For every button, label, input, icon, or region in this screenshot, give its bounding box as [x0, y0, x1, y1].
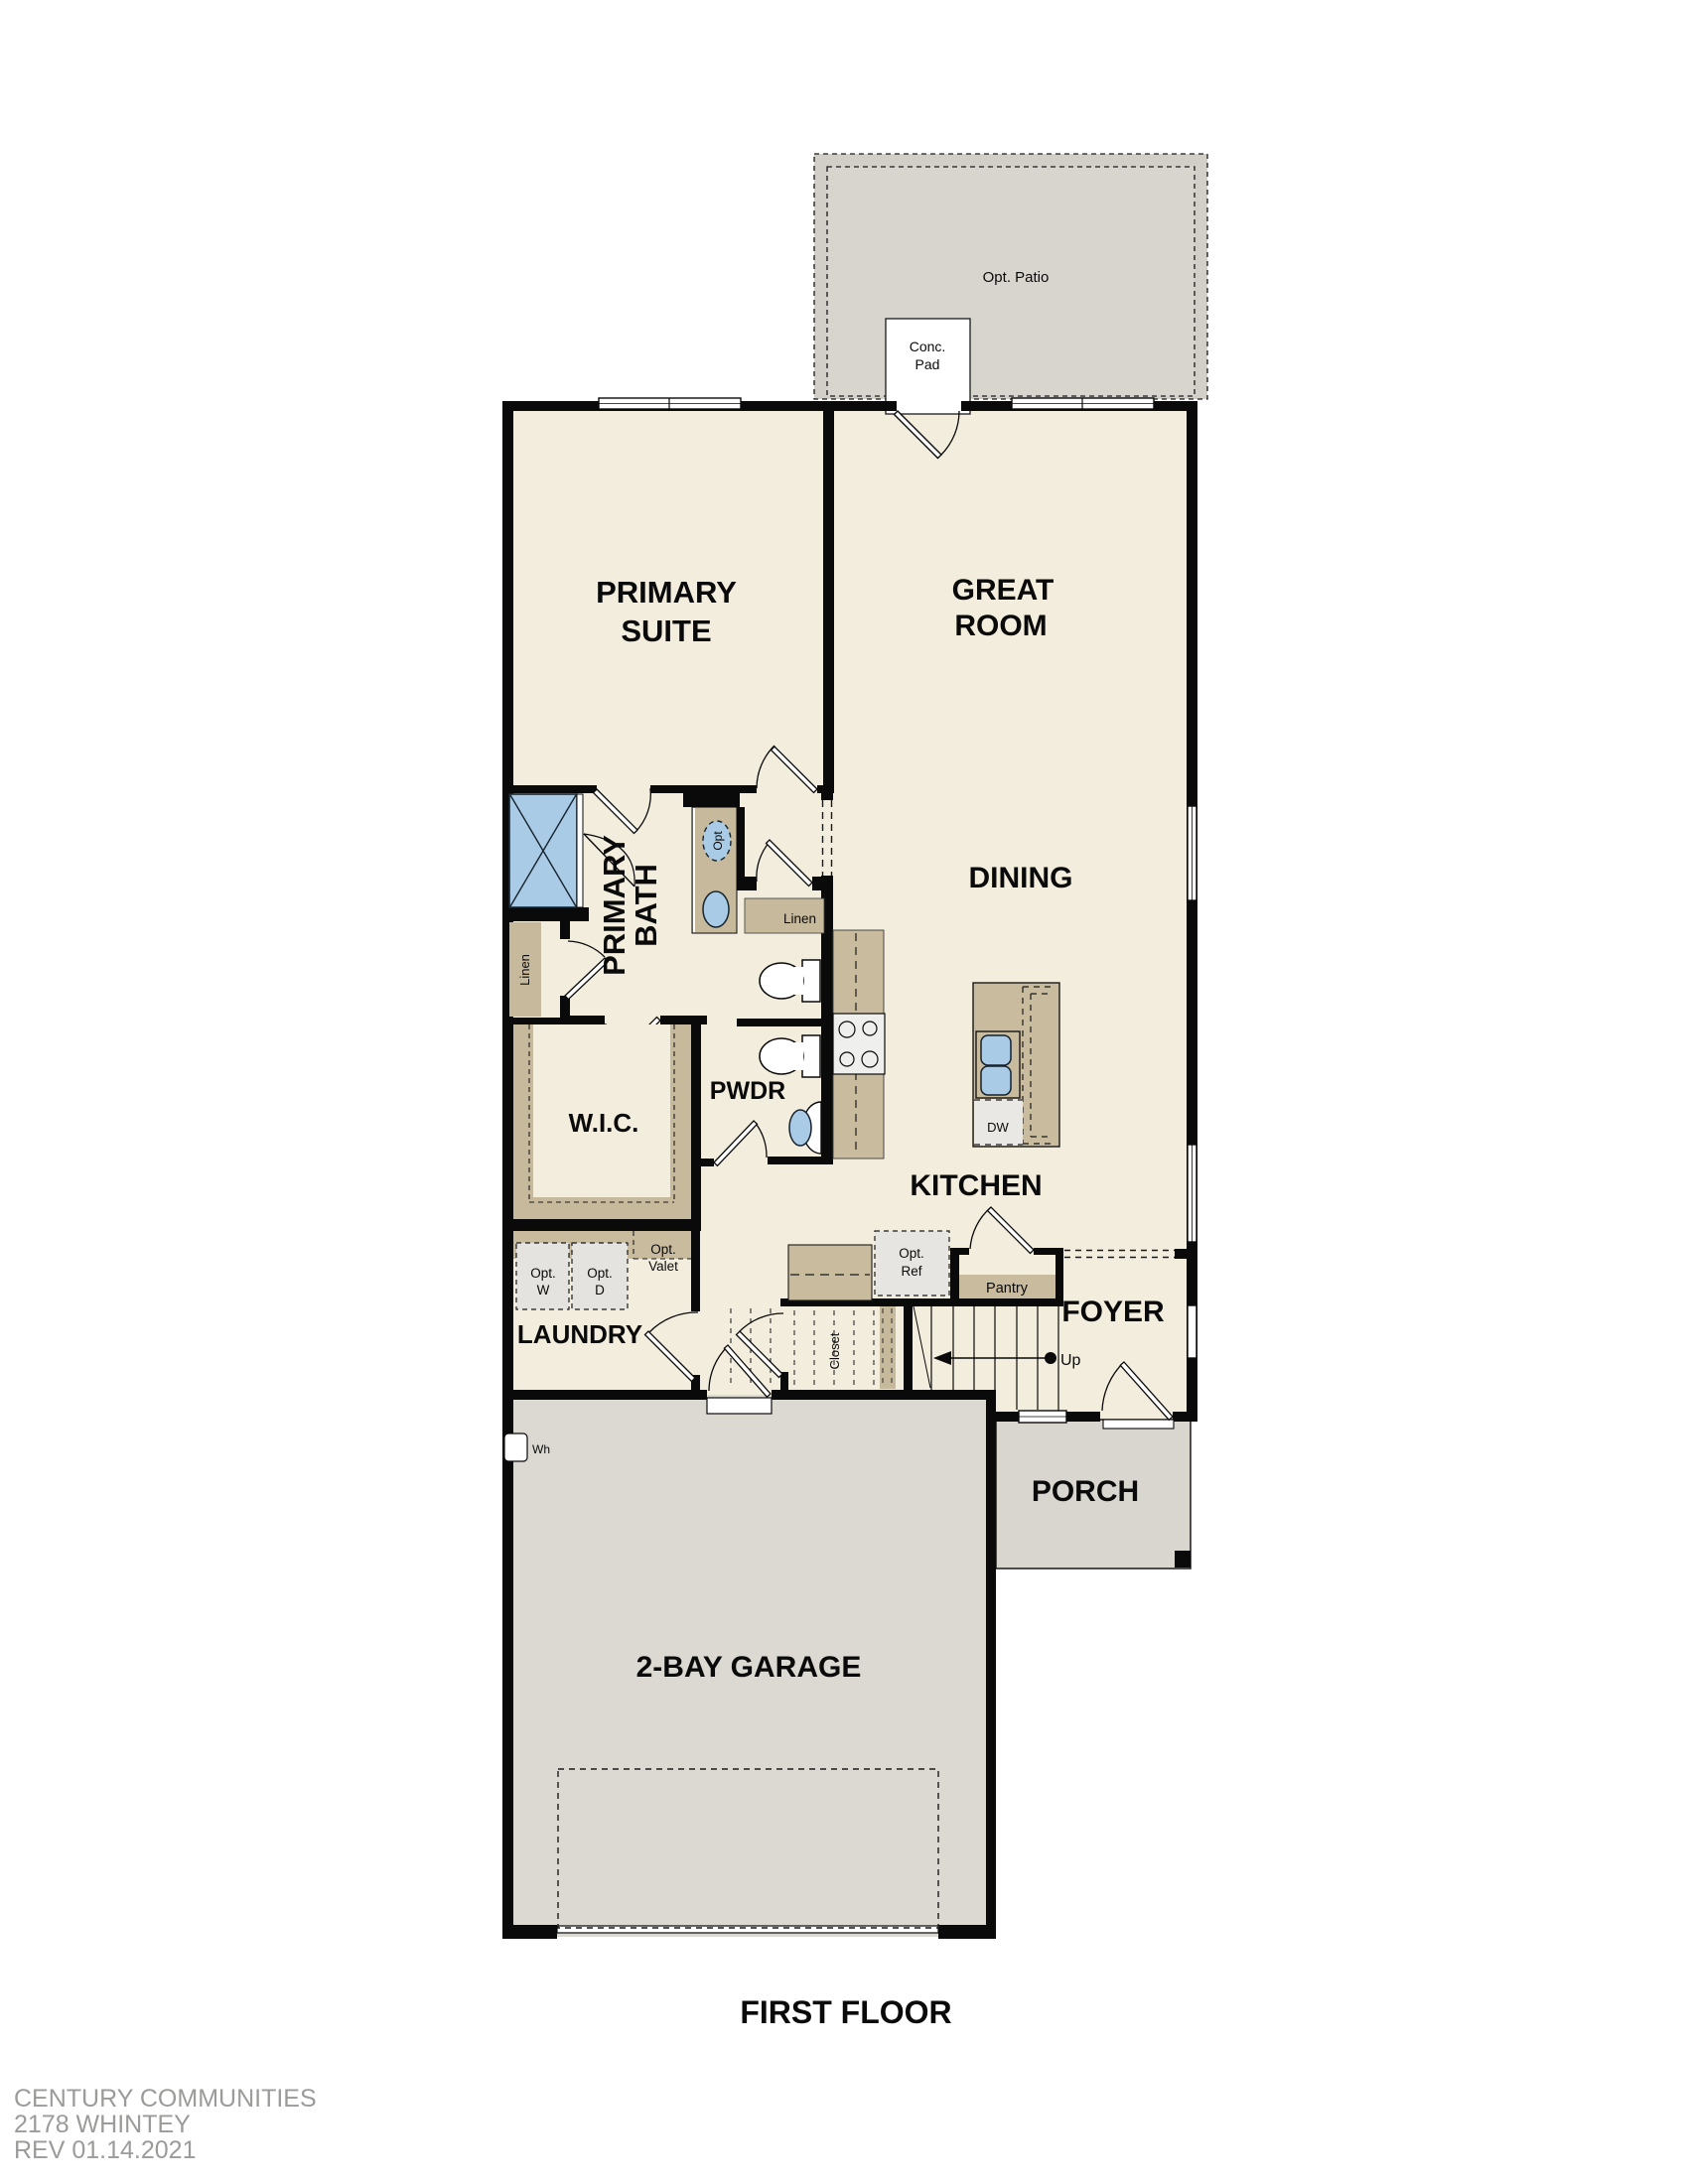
svg-text:LAUNDRY: LAUNDRY — [517, 1319, 642, 1349]
svg-text:DW: DW — [987, 1120, 1009, 1135]
svg-text:Opt. Patio: Opt. Patio — [983, 269, 1050, 286]
svg-text:Opt.: Opt. — [587, 1266, 613, 1281]
svg-text:2178 WHINTEY: 2178 WHINTEY — [14, 2111, 191, 2138]
svg-text:BATH: BATH — [629, 864, 663, 947]
svg-text:W: W — [537, 1283, 550, 1297]
svg-text:CENTURY COMMUNITIES: CENTURY COMMUNITIES — [14, 2085, 317, 2113]
svg-text:PORCH: PORCH — [1032, 1475, 1139, 1508]
svg-text:D: D — [595, 1283, 605, 1297]
svg-text:REV 01.14.2021: REV 01.14.2021 — [14, 2136, 196, 2164]
svg-text:Opt.: Opt. — [650, 1242, 676, 1257]
svg-text:Opt.: Opt. — [530, 1266, 556, 1281]
svg-text:Closet: Closet — [827, 1332, 842, 1369]
svg-text:Linen: Linen — [517, 954, 532, 986]
svg-text:PRIMARY: PRIMARY — [597, 835, 632, 976]
svg-text:Pantry: Pantry — [986, 1281, 1029, 1297]
svg-text:PRIMARY: PRIMARY — [596, 575, 737, 610]
svg-text:2-BAY GARAGE: 2-BAY GARAGE — [636, 1651, 862, 1684]
svg-text:KITCHEN: KITCHEN — [910, 1169, 1042, 1202]
svg-text:PWDR: PWDR — [710, 1077, 785, 1105]
svg-text:SUITE: SUITE — [621, 614, 711, 648]
svg-text:Opt.: Opt. — [899, 1246, 924, 1261]
svg-text:W.I.C.: W.I.C. — [569, 1108, 639, 1138]
svg-text:FIRST FLOOR: FIRST FLOOR — [740, 1994, 951, 2030]
svg-text:ROOM: ROOM — [954, 610, 1047, 642]
svg-text:Up: Up — [1060, 1352, 1081, 1369]
svg-text:Conc.: Conc. — [910, 339, 946, 354]
svg-text:DINING: DINING — [969, 862, 1073, 894]
svg-text:Pad: Pad — [915, 356, 940, 372]
svg-text:Wh: Wh — [532, 1442, 550, 1456]
svg-text:GREAT: GREAT — [952, 574, 1055, 607]
svg-text:Linen: Linen — [783, 911, 816, 926]
svg-text:Valet: Valet — [648, 1259, 678, 1274]
svg-text:FOYER: FOYER — [1061, 1296, 1165, 1328]
svg-text:Ref: Ref — [901, 1264, 921, 1279]
svg-text:Opt: Opt — [711, 831, 725, 851]
